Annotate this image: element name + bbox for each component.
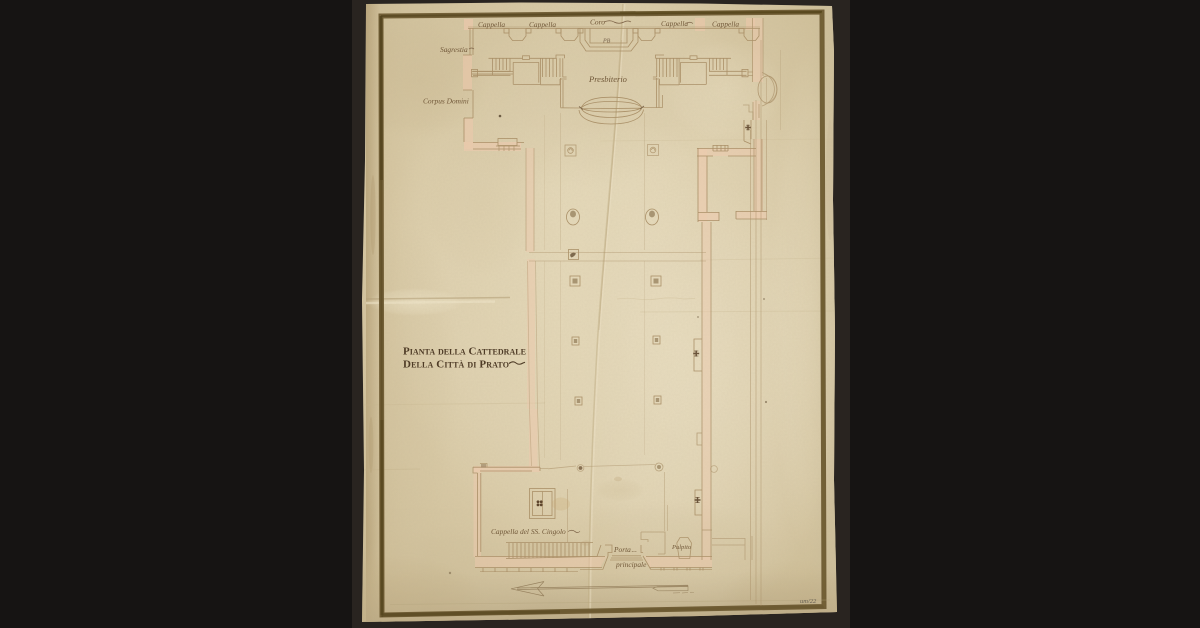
svg-text:principale: principale [615,560,647,569]
svg-text:Cappella del SS. Cingolo: Cappella del SS. Cingolo [491,527,566,536]
svg-text:Sagrestia: Sagrestia [440,45,468,54]
svg-text:um/22: um/22 [800,598,817,605]
svg-text:Pianta della Cattedrale: Pianta della Cattedrale [403,346,526,358]
svg-text:Cappella: Cappella [529,20,556,29]
svg-text:Corpus Domini: Corpus Domini [423,97,469,106]
svg-text:Presbiterio: Presbiterio [588,74,627,84]
svg-text:Della Città di Prato: Della Città di Prato [403,359,509,371]
svg-text:Cappella: Cappella [661,19,688,28]
svg-text:Cappella: Cappella [712,20,739,29]
svg-text:Porta ...: Porta ... [613,545,637,554]
svg-text:Pulpito: Pulpito [671,544,692,551]
svg-text:PB: PB [602,39,611,45]
svg-text:Coro: Coro [590,18,605,27]
svg-text:Cappella: Cappella [478,20,505,29]
